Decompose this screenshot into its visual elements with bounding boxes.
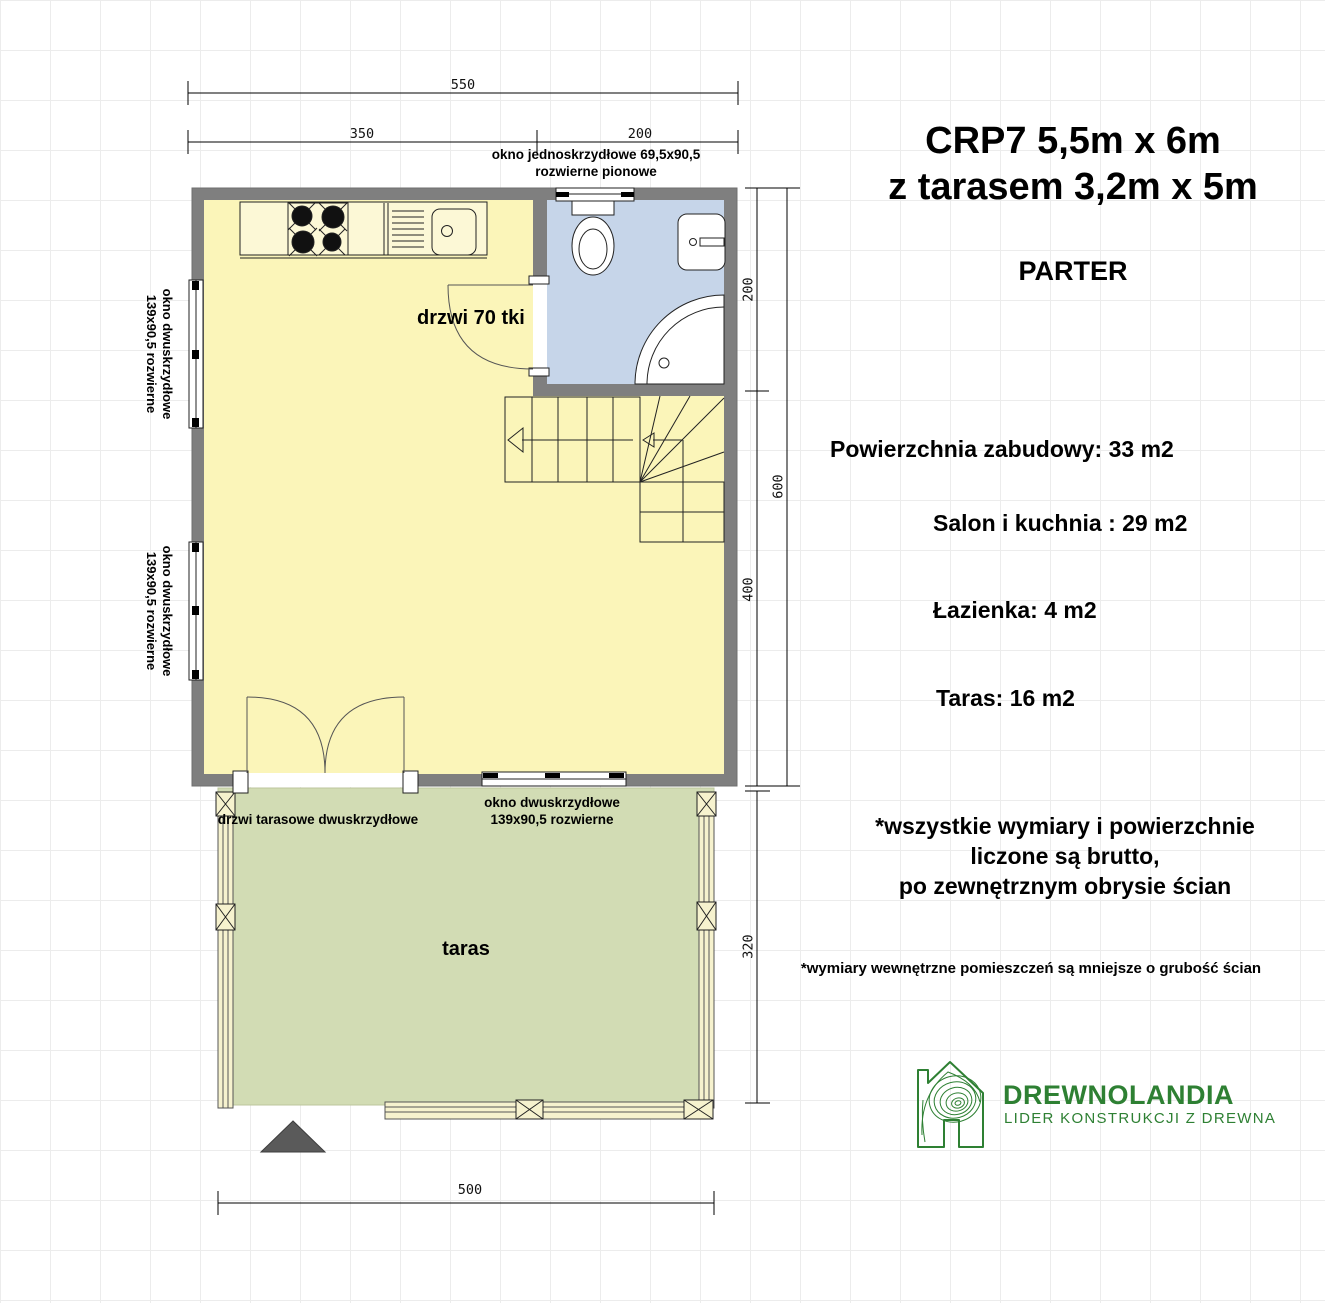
floor-label: PARTER [823,256,1323,287]
dimension-terrace-side: 320 [742,922,757,972]
label-window-left-upper: okno dwuskrzydłowe 139x90,5 rozwierne [143,269,175,439]
label-line: okno jednoskrzydłowe 69,5x90,5 [446,146,746,163]
logo-name: DREWNOLANDIA [1003,1080,1234,1111]
window-bottom [482,772,626,786]
note-internal-dimensions: *wymiary wewnętrzne pomieszczeń są mniej… [786,960,1276,977]
label-terrace-door: drzwi tarasowe dwuskrzydłowe [193,812,443,827]
label-window-bottom: okno dwuskrzydłowe 139x90,5 rozwierne [452,794,652,828]
note-line: liczone są brutto, [795,841,1325,871]
label-bathroom-door: drzwi 70 tki [417,307,525,330]
label-line: rozwierne pionowe [446,163,746,180]
floor-plan-canvas: 550 350 200 200 400 600 320 500 okno jed… [0,0,1325,1303]
dimension-bottom-total: 500 [430,1183,510,1198]
kitchen-counter [240,202,487,258]
page-title-line2: z tarasem 3,2m x 5m [823,166,1323,209]
note-line: po zewnętrznym obrysie ścian [795,871,1325,901]
window-left-lower [189,542,203,680]
label-window-top: okno jednoskrzydłowe 69,5x90,5 rozwierne… [446,146,746,180]
label-terrace-room: taras [416,938,516,961]
bathroom-wall-horizontal [533,384,724,396]
label-line: 139x90,5 rozwierne [143,269,159,439]
dimension-top-right: 200 [600,127,680,142]
dimension-right-total: 600 [772,462,787,512]
area-living-kitchen: Salon i kuchnia : 29 m2 [933,510,1187,537]
label-line: 139x90,5 rozwierne [143,526,159,696]
note-gross-dimensions: *wszystkie wymiary i powierzchnie liczon… [795,811,1325,901]
logo-house-icon [918,1062,986,1147]
logo-tagline: LIDER KONSTRUKCJI Z DREWNA [1004,1110,1276,1127]
label-line: okno dwuskrzydłowe [452,794,652,811]
dimension-top-total: 550 [423,78,503,93]
dimension-top-left: 350 [322,127,402,142]
bathroom-sink [678,214,725,270]
toilet [572,201,614,275]
area-terrace: Taras: 16 m2 [936,685,1075,712]
dimension-right-lower: 400 [742,565,757,615]
label-line: 139x90,5 rozwierne [452,811,652,828]
window-left-upper [189,280,203,428]
page-title-line1: CRP7 5,5m x 6m [823,120,1323,163]
dimension-right-upper: 200 [742,265,757,315]
window-top-bathroom [556,188,634,201]
note-line: *wszystkie wymiary i powierzchnie [795,811,1325,841]
label-window-left-lower: okno dwuskrzydłowe 139x90,5 rozwierne [143,526,175,696]
area-built-up: Powierzchnia zabudowy: 33 m2 [830,436,1174,463]
area-bathroom: Łazienka: 4 m2 [933,597,1097,624]
entrance-triangle [261,1121,325,1152]
label-line: okno dwuskrzydłowe [159,526,175,696]
label-line: okno dwuskrzydłowe [159,269,175,439]
house-structure [192,188,737,786]
